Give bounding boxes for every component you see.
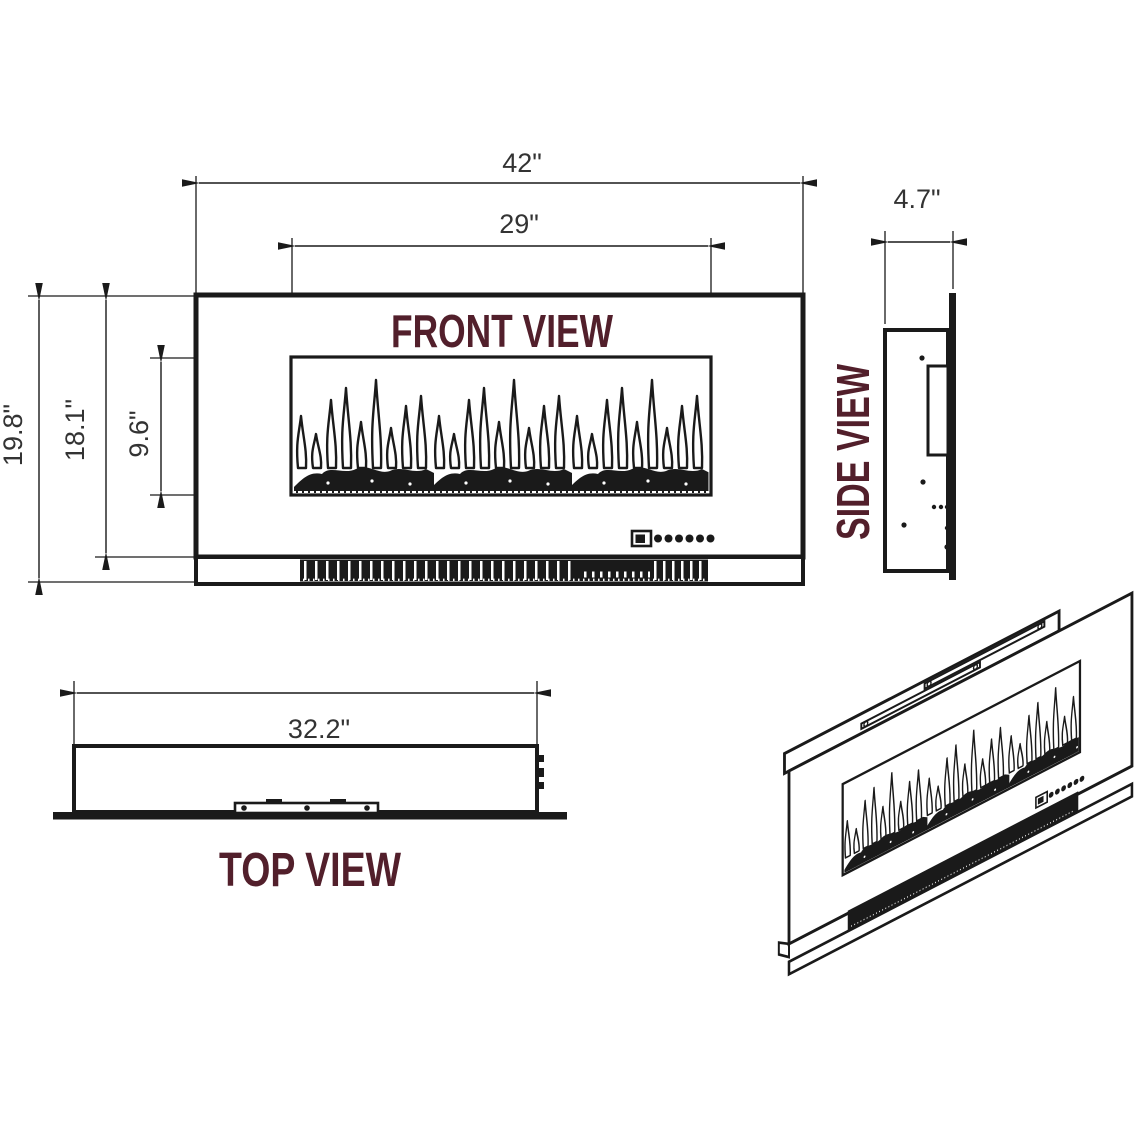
- front-view-title: FRONT VIEW: [391, 305, 613, 357]
- side-bracket: [928, 366, 948, 455]
- side-view: 4.7" SIDE VIEW: [827, 184, 956, 580]
- front-base-strip: [196, 557, 803, 584]
- top-cord-bumps: [537, 755, 544, 789]
- dim-42-label: 42": [502, 148, 542, 178]
- front-heater-vent: [300, 560, 708, 582]
- dim-4-7-label: 4.7": [893, 184, 940, 214]
- diagram-canvas: 42" 29" 19.8" 18.1" 9.6": [0, 0, 1134, 1134]
- side-front-panel: [949, 293, 956, 580]
- front-view: 42" 29" 19.8" 18.1" 9.6": [0, 148, 803, 584]
- persp-left-wedge: [779, 937, 789, 962]
- dim-9-6-label: 9.6": [124, 410, 154, 457]
- perspective-view: [779, 573, 1132, 979]
- dim-32-2-label: 32.2": [288, 714, 350, 744]
- dim-overall-height-19-8: 19.8": [0, 296, 196, 582]
- dim-19-8-label: 19.8": [0, 404, 28, 466]
- dim-depth-4-7: 4.7": [885, 184, 953, 324]
- top-front-panel: [53, 812, 567, 820]
- fireplace-dimension-diagram: 42" 29" 19.8" 18.1" 9.6": [0, 0, 1134, 1134]
- dim-mount-width-32-2: 32.2": [74, 681, 537, 744]
- dim-29-label: 29": [499, 209, 539, 239]
- front-log-bed: [294, 467, 710, 491]
- side-view-title: SIDE VIEW: [827, 364, 879, 540]
- dim-18-1-label: 18.1": [60, 399, 90, 461]
- top-view: 32.2" TOP VIEW: [53, 681, 567, 897]
- top-view-title: TOP VIEW: [219, 844, 402, 897]
